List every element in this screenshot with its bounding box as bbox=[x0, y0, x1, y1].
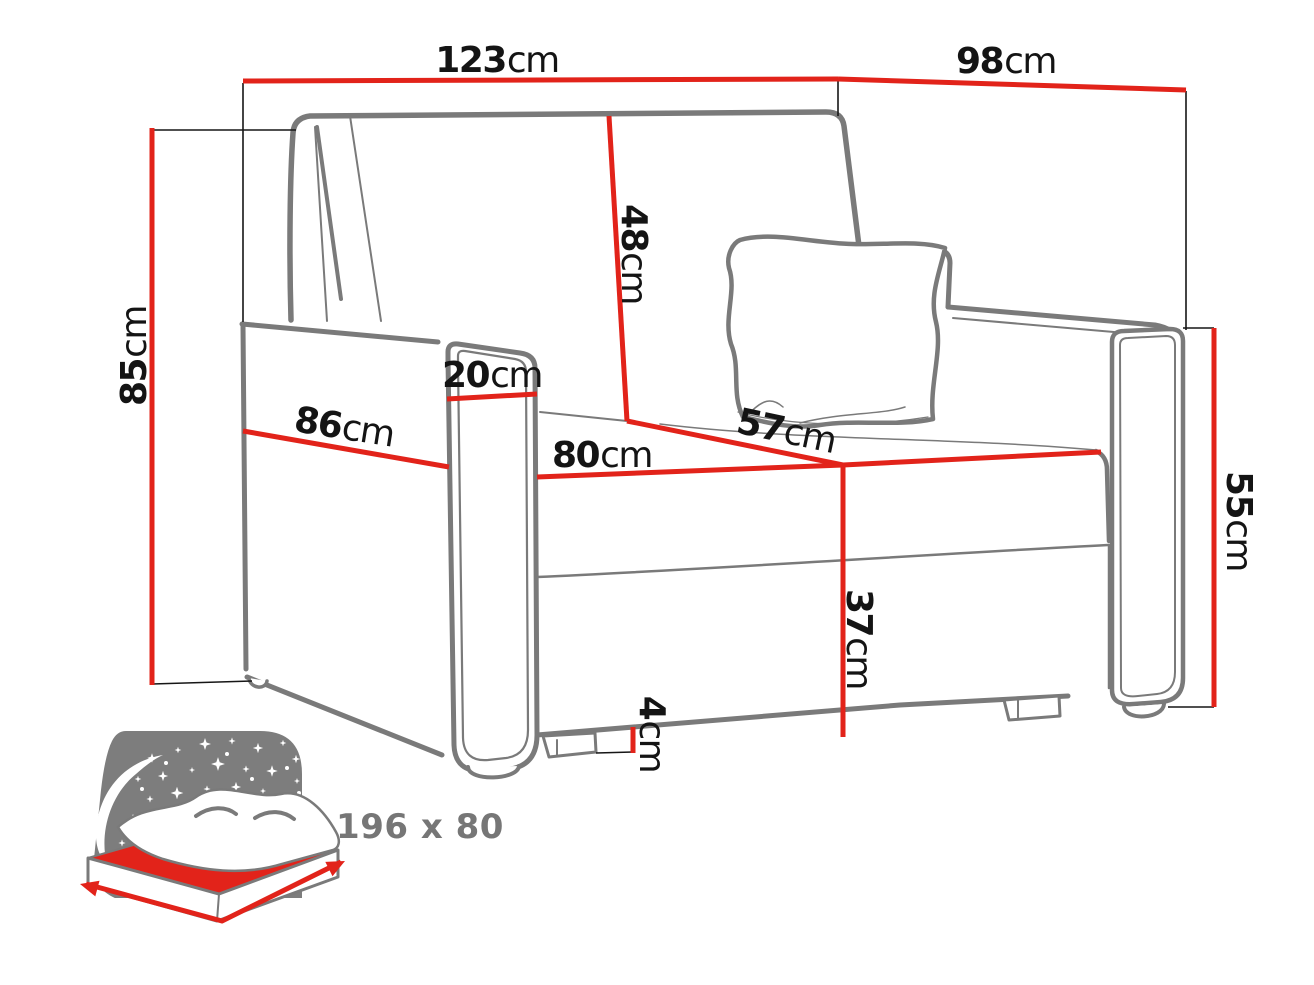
dimension-unit: cm bbox=[339, 407, 397, 456]
dimension-label-overall-height: 85cm bbox=[117, 306, 153, 406]
dimension-unit: cm bbox=[490, 355, 542, 396]
pillow bbox=[728, 237, 945, 427]
dimension-value: 98 bbox=[956, 41, 1003, 82]
dimension-unit: cm bbox=[507, 40, 559, 81]
dimension-label-seat-height: 37cm bbox=[840, 589, 876, 689]
dimension-unit: cm bbox=[838, 637, 879, 689]
dimension-label-seat-width: 80cm bbox=[552, 438, 652, 474]
dimension-unit: cm bbox=[1004, 41, 1056, 82]
dimension-label-backrest-height: 48cm bbox=[615, 204, 651, 304]
dimension-label-leg-height: 4cm bbox=[633, 696, 669, 772]
dimension-label-overall-width: 123cm bbox=[435, 43, 559, 79]
dimension-value: 20 bbox=[442, 355, 489, 396]
dimension-unit: cm bbox=[631, 720, 672, 772]
bed-icon bbox=[80, 731, 345, 921]
dimension-value: 80 bbox=[552, 435, 599, 476]
left-side-panel bbox=[242, 324, 455, 770]
dimension-label-armrest-width: 20cm bbox=[442, 358, 542, 394]
sofa-diagram-svg bbox=[0, 0, 1314, 985]
dimension-unit: cm bbox=[600, 435, 652, 476]
dimension-unit: cm bbox=[114, 306, 155, 358]
dimension-diagram: 123cm 98cm 85cm 48cm 20cm 86cm 80cm 57cm… bbox=[0, 0, 1314, 985]
dimension-label-armrest-height: 55cm bbox=[1220, 471, 1256, 571]
dimension-value: 48 bbox=[613, 204, 654, 251]
dimension-value: 85 bbox=[114, 359, 155, 406]
dimension-unit: cm bbox=[613, 252, 654, 304]
dimension-unit: cm bbox=[1218, 519, 1259, 571]
dimension-label-overall-depth: 98cm bbox=[956, 44, 1056, 80]
dimension-value: 37 bbox=[838, 589, 879, 636]
sleeping-area-label: 196 x 80 bbox=[336, 810, 504, 844]
left-armrest bbox=[448, 344, 537, 778]
dimension-value: 86 bbox=[291, 399, 344, 447]
dimension-value: 4 bbox=[631, 696, 672, 720]
dimension-value: 55 bbox=[1218, 471, 1259, 518]
right-armrest bbox=[1112, 329, 1183, 716]
dimension-value: 123 bbox=[435, 40, 506, 81]
